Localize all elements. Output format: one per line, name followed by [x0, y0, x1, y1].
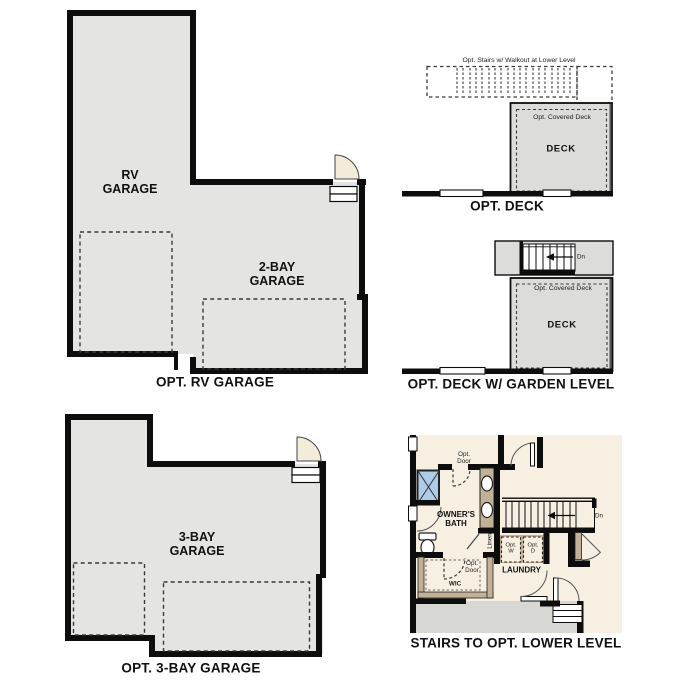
opt-deck-plan [402, 67, 613, 197]
linen-label: Linen [486, 533, 493, 548]
shower-icon [418, 471, 440, 504]
owners-bath-label: OWNER'S BATH [435, 511, 477, 529]
opt-dryer-label: Opt. D [526, 543, 541, 556]
steps-icon [330, 187, 357, 202]
floorplan-drawing [0, 0, 687, 687]
window-icon [409, 506, 418, 521]
laundry-label: LAUNDRY [502, 567, 541, 576]
opt-washer-label: Opt. W [504, 543, 519, 556]
rv-garage-caption: OPT. RV GARAGE [156, 374, 274, 389]
wic-label: WIC [449, 580, 461, 587]
deck-label: DECK [546, 145, 575, 156]
deck-caption: OPT. DECK [470, 198, 544, 213]
stairs-caption: STAIRS TO OPT. LOWER LEVEL [411, 635, 622, 650]
opt-door-wic-label: Opt. Door [463, 560, 482, 574]
sink-icon [482, 503, 493, 518]
covered-deck-label: Opt. Covered Deck [534, 285, 592, 293]
walkout-stairs-note: Opt. Stairs w/ Walkout at Lower Level [462, 57, 575, 65]
sink-icon [482, 476, 493, 491]
window-icon [440, 368, 485, 375]
door-swing-icon [335, 155, 359, 179]
window-icon [409, 437, 418, 451]
lower-level-stairs-plan [409, 435, 623, 633]
down-label: Dn [577, 253, 585, 260]
vanity-icon [480, 468, 494, 528]
stairs-icon [520, 241, 576, 275]
down-label: Dn [595, 512, 603, 519]
covered-deck-label: Opt. Covered Deck [533, 114, 591, 122]
walkout-stairs-dashed [427, 67, 612, 104]
three-bay-caption: OPT. 3-BAY GARAGE [121, 660, 260, 675]
steps-icon [553, 605, 582, 623]
opt-door-label: Opt. Door [455, 451, 473, 465]
three-bay-garage-label: 3-BAY GARAGE [167, 530, 227, 558]
deck-label: DECK [547, 321, 576, 332]
steps-icon [292, 468, 320, 483]
door-swing-icon [297, 437, 321, 461]
deck-garden-caption: OPT. DECK W/ GARDEN LEVEL [408, 376, 615, 391]
window-icon [440, 190, 483, 197]
rv-garage-label: RV GARAGE [99, 168, 161, 196]
deck-garden-plan [402, 241, 613, 374]
two-bay-garage-label: 2-BAY GARAGE [247, 260, 307, 288]
window-icon [543, 368, 571, 375]
window-icon [543, 190, 571, 197]
floorplan-options-sheet: RV GARAGE 2-BAY GARAGE OPT. RV GARAGE Op… [0, 0, 687, 687]
